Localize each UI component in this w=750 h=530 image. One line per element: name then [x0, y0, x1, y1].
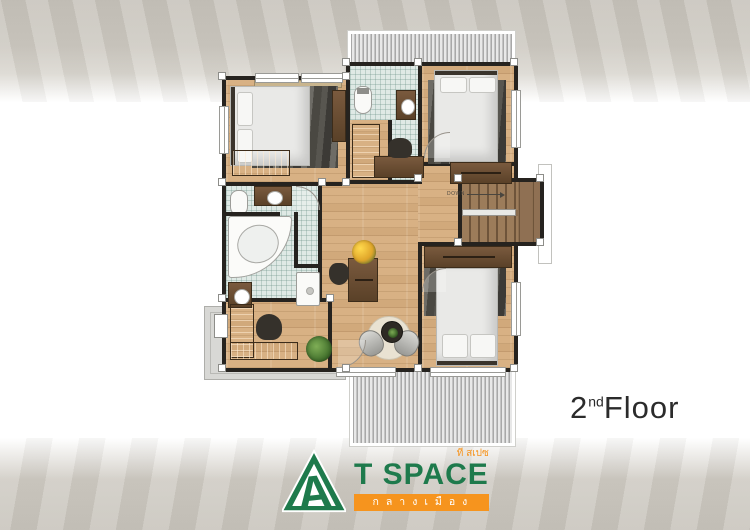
column-marker [414, 58, 422, 66]
shower-tray [296, 272, 320, 306]
svg-text:A: A [295, 465, 335, 517]
console-table [348, 258, 378, 302]
shower-wall [294, 264, 320, 268]
column-marker [326, 294, 334, 302]
console-handle [355, 279, 373, 281]
floor-word: Floor [604, 390, 680, 425]
office-bookshelf [230, 342, 298, 360]
window-west-bedroom [219, 106, 229, 154]
roof-strip-bottom [350, 368, 515, 446]
logo-title: T SPACE [354, 459, 489, 491]
bed-headboard [435, 71, 497, 75]
console-chair [329, 263, 349, 285]
coffee-table [381, 321, 403, 343]
dresser-handle [443, 256, 495, 258]
toilet-top-bathroom [354, 86, 372, 114]
bed-pillow [440, 77, 467, 93]
column-marker [454, 174, 462, 182]
bed-pillow [442, 334, 468, 358]
sink-basin [234, 289, 250, 305]
column-marker [342, 364, 350, 372]
tspace-logo-mark: A [282, 449, 346, 517]
cabinet-top-left [332, 90, 346, 142]
column-marker [218, 72, 226, 80]
column-marker [218, 294, 226, 302]
study-chair [388, 138, 412, 158]
balcony-unit [214, 314, 228, 338]
column-marker [318, 178, 326, 186]
window-south-bedroom [430, 367, 506, 377]
floor-ordinal: nd [588, 394, 604, 410]
bed-pillow [237, 92, 253, 126]
stair-direction: DOWN [447, 192, 501, 197]
bathroom-sub-wall-v [294, 212, 298, 264]
column-marker [218, 364, 226, 372]
floor-title: 2ndFloor [570, 390, 679, 426]
column-marker [536, 238, 544, 246]
column-marker [218, 178, 226, 186]
window-top-left-b [301, 73, 343, 83]
column-marker [536, 174, 544, 182]
bed-headboard [437, 361, 497, 365]
office-chair [256, 314, 282, 340]
vanity-top-bathroom [396, 90, 416, 120]
floor-plan-poster: DOWN [0, 0, 750, 530]
down-arrow-icon [467, 194, 501, 195]
flower-pot [352, 240, 376, 264]
bed-pillow [470, 334, 496, 358]
column-marker [454, 238, 462, 246]
sink-basin [267, 191, 283, 205]
sink-basin [401, 99, 415, 115]
column-marker [414, 364, 422, 372]
wardrobe-top-left [232, 150, 290, 176]
column-marker [510, 58, 518, 66]
column-marker [342, 178, 350, 186]
table-plant [388, 328, 398, 338]
column-marker [342, 72, 350, 80]
window-east-bedroom-top [511, 90, 521, 148]
vanity-left-bathroom [254, 186, 292, 206]
shower-drain [306, 287, 314, 295]
staircase [458, 178, 544, 246]
dresser-handle [461, 172, 501, 174]
column-marker [342, 58, 350, 66]
stair-landing [518, 182, 540, 242]
toilet-tank [357, 88, 369, 94]
column-marker [414, 174, 422, 182]
logo-banner: กลางเมือง [354, 494, 489, 512]
potted-plant [306, 336, 332, 362]
floor-number: 2 [570, 390, 588, 425]
dresser-bottom-right [424, 246, 512, 268]
window-east-bedroom-bottom [511, 282, 521, 336]
column-marker [510, 364, 518, 372]
brand-logo: A ที สเปซ T SPACE กลางเมือง [282, 449, 489, 517]
bed-pillow [469, 77, 496, 93]
window-top-left-a [255, 73, 299, 83]
logo-text-block: ที สเปซ T SPACE กลางเมือง [354, 449, 489, 511]
stair-rail [462, 209, 516, 216]
down-label: DOWN [447, 192, 465, 197]
